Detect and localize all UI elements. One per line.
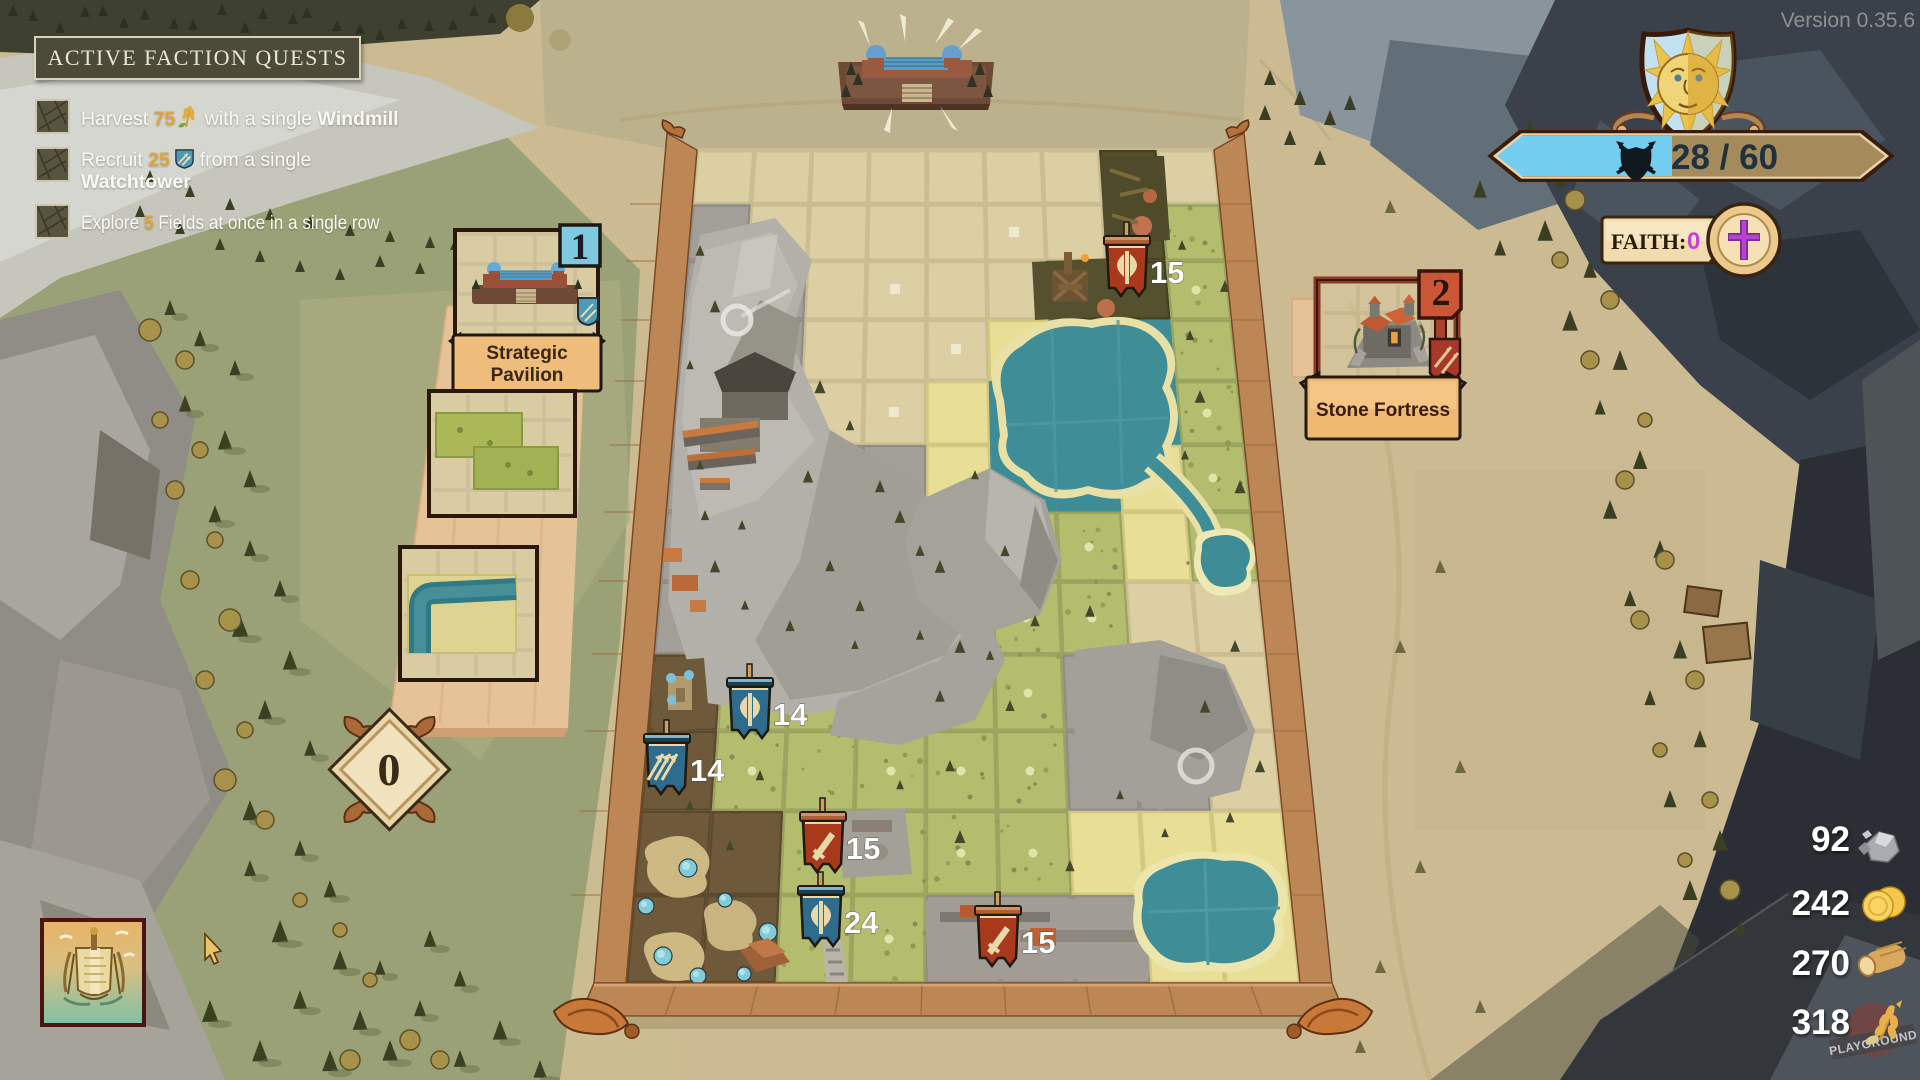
svg-text:0: 0 bbox=[378, 744, 401, 795]
svg-text:15: 15 bbox=[846, 831, 880, 866]
svg-text:1: 1 bbox=[571, 227, 590, 268]
svg-text:14: 14 bbox=[690, 753, 725, 788]
svg-text:FAITH:: FAITH: bbox=[1611, 229, 1686, 254]
svg-text:15: 15 bbox=[1150, 255, 1184, 290]
svg-text:0: 0 bbox=[1687, 228, 1700, 255]
svg-text:Strategic: Strategic bbox=[486, 343, 568, 364]
svg-text:2: 2 bbox=[1432, 272, 1451, 314]
svg-text:Pavilion: Pavilion bbox=[491, 365, 564, 386]
svg-text:24: 24 bbox=[844, 905, 879, 940]
svg-text:15: 15 bbox=[1021, 925, 1055, 960]
svg-text:14: 14 bbox=[773, 697, 808, 732]
svg-text:28 / 60: 28 / 60 bbox=[1671, 138, 1778, 177]
svg-text:Stone Fortress: Stone Fortress bbox=[1316, 400, 1450, 421]
